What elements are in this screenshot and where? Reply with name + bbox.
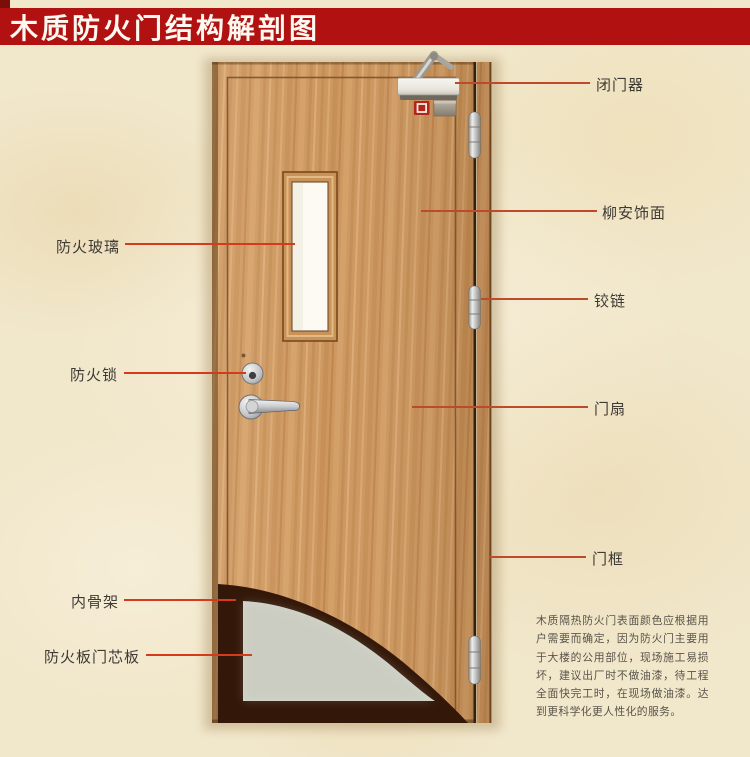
label-fire-lock: 防火锁 (70, 364, 118, 385)
door-frame (477, 62, 491, 723)
label-hinge: 铰链 (594, 290, 626, 311)
leader-door-frame (489, 556, 586, 558)
leader-veneer (421, 210, 597, 212)
leader-fire-lock (124, 372, 246, 374)
label-inner-skeleton: 内骨架 (71, 591, 119, 612)
leader-door-closer (455, 82, 590, 84)
label-door-frame: 门框 (592, 548, 624, 569)
description-text: 木质隔热防火门表面颜色应根据用户需要而确定，因为防火门主要用于大楼的公用部位，现… (536, 612, 709, 722)
hinge-bottom-icon (469, 636, 481, 684)
hinge-top-icon (469, 112, 481, 158)
label-fireboard-core: 防火板门芯板 (44, 646, 140, 667)
label-door-leaf: 门扇 (594, 398, 626, 419)
leader-door-leaf (412, 406, 588, 408)
alarm-indicator-icon (414, 101, 430, 115)
label-veneer: 柳安饰面 (602, 202, 666, 223)
device-box (434, 101, 456, 117)
label-door-closer: 闭门器 (596, 74, 644, 95)
door-gap-line (474, 62, 477, 723)
leader-fireboard-core (146, 654, 252, 656)
fire-glass-window (283, 172, 337, 341)
door-closer-body (398, 78, 460, 95)
leader-hinge (481, 298, 588, 300)
hinge-middle-icon (469, 286, 481, 329)
leader-fire-glass (125, 243, 295, 245)
leader-inner-skeleton (124, 599, 236, 601)
label-fire-glass: 防火玻璃 (56, 236, 120, 257)
